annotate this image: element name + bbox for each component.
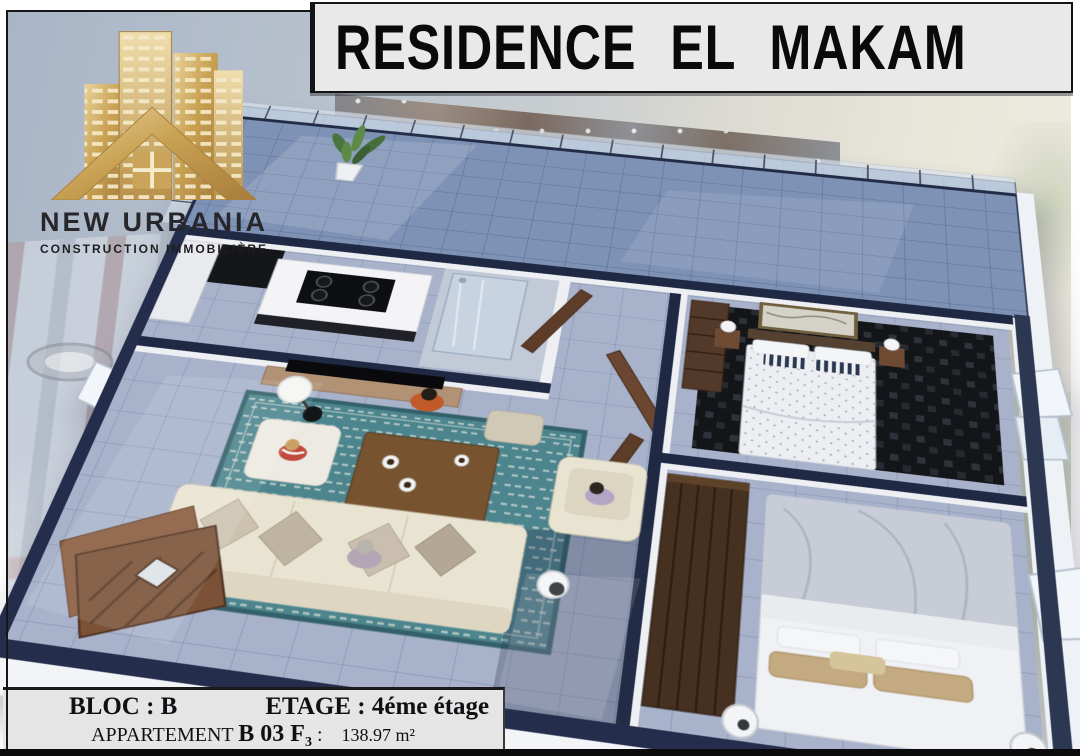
poster-page: NEW URBANIA CONSTRUCTION IMMOBILIÈRE RES… — [0, 0, 1080, 756]
apartment-sep: : — [312, 724, 323, 746]
title-banner: RESIDENCE EL MAKAM — [310, 2, 1073, 93]
footer-line1: BLOC : B ETAGE : 4éme étage — [3, 690, 503, 721]
residence-title: RESIDENCE EL MAKAM — [335, 12, 967, 84]
company-logo: NEW URBANIA CONSTRUCTION IMMOBILIÈRE — [28, 22, 280, 256]
apartment-info-box: BLOC : B ETAGE : 4éme étage APPARTEMENT … — [3, 687, 505, 749]
apartment-area: 138.97 m² — [342, 725, 415, 745]
apartment-label: APPARTEMENT — [91, 724, 238, 746]
etage-label: ETAGE : 4éme étage — [265, 693, 489, 721]
logo-tagline: CONSTRUCTION IMMOBILIÈRE — [28, 242, 280, 256]
bloc-label: BLOC : B — [69, 693, 177, 721]
pouf — [483, 409, 545, 446]
bottom-black-band — [0, 749, 1080, 756]
apartment-unit: B 03 F — [238, 721, 305, 747]
gold-buildings-icon — [28, 22, 280, 200]
logo-company-name: NEW URBANIA — [28, 207, 280, 238]
footer-line2: APPARTEMENT B 03 F3 : 138.97 m² — [3, 721, 503, 751]
frame-line-left — [6, 10, 8, 749]
frame-line-top — [6, 10, 311, 12]
apartment-unit-sub: 3 — [305, 735, 312, 750]
